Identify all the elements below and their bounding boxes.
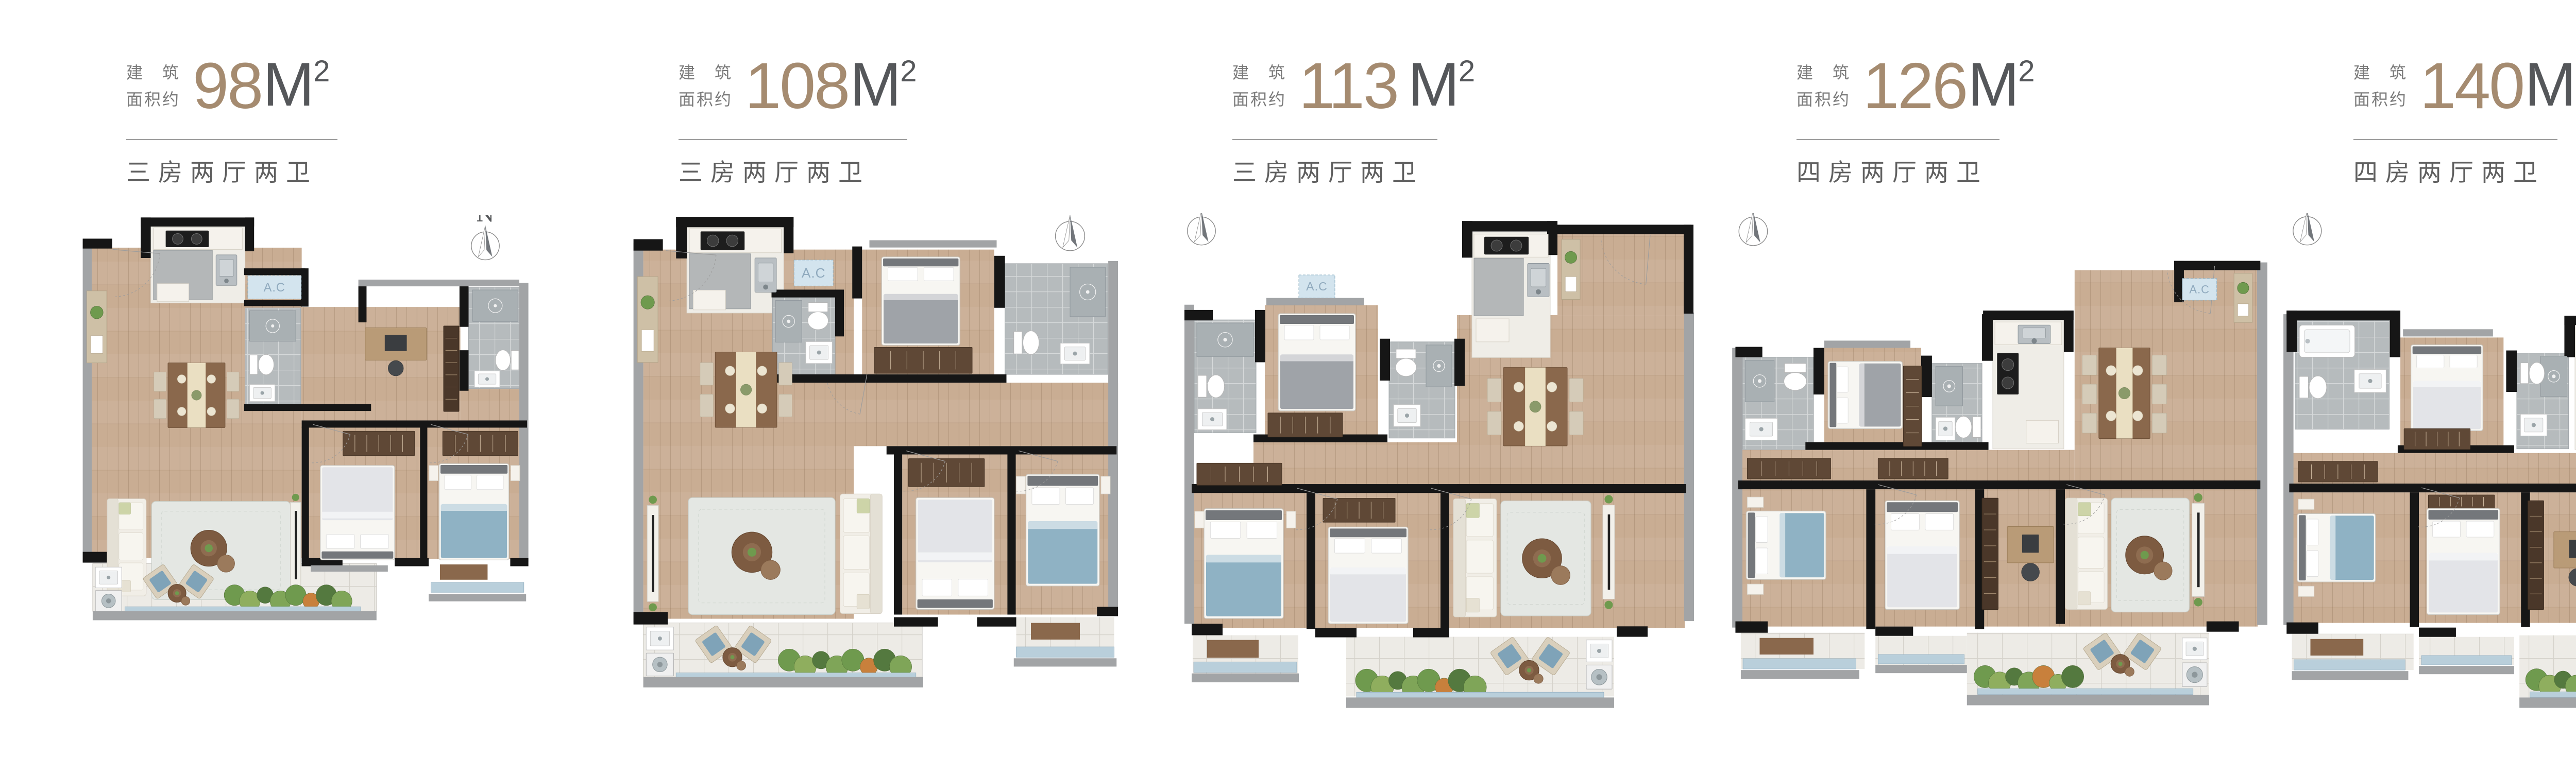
ac-label: A.C: [794, 260, 833, 286]
divider: [679, 139, 907, 140]
area-number: 126: [1863, 54, 1967, 118]
area-unit: M2: [1408, 54, 1474, 115]
area-row: 建 筑 面积约 98 M2: [126, 54, 337, 132]
area-unit: M2: [850, 54, 916, 115]
area-number: 113: [1299, 54, 1398, 118]
floor-plan-svg: A.CN: [2281, 213, 2576, 747]
area-number: 98: [193, 54, 262, 118]
svg-text:N: N: [1060, 214, 1079, 216]
room-config: 四房两厅两卫: [1797, 152, 1999, 188]
compass-icon: N: [2293, 213, 2321, 245]
area-unit: M2: [2524, 54, 2576, 115]
unit-header: 建 筑 面积约 108 M2 三房两厅两卫: [679, 54, 907, 188]
unit-header: 建 筑 面积约 98 M2 三房两厅两卫: [126, 54, 337, 188]
ac-label: A.C: [1299, 275, 1335, 298]
area-value: 126 M2: [1863, 54, 2033, 118]
area-label-line1: 建 筑: [1232, 60, 1286, 87]
divider: [126, 139, 337, 140]
compass-icon: N: [471, 215, 499, 260]
area-label-line2: 面积约: [126, 87, 180, 113]
unit-header: 建 筑 面积约 113 M2 三房两厅两卫: [1232, 54, 1437, 188]
area-label-line2: 面积约: [679, 87, 733, 113]
ac-label: A.C: [2182, 279, 2217, 300]
svg-text:A.C: A.C: [802, 265, 826, 281]
area-label: 建 筑 面积约: [679, 54, 733, 113]
area-label-line2: 面积约: [2353, 87, 2408, 113]
area-label-line2: 面积约: [1797, 87, 1851, 113]
area-row: 建 筑 面积约 126 M2: [1797, 54, 1999, 132]
area-unit: M2: [1968, 54, 2033, 115]
area-unit-sup: 2: [313, 57, 329, 87]
floor-plan: A.CN: [2281, 213, 2576, 747]
svg-text:A.C: A.C: [1306, 280, 1328, 293]
unit-header: 建 筑 面积约 140 M2 四房两厅两卫: [2353, 54, 2557, 188]
area-label: 建 筑 面积约: [1797, 54, 1851, 113]
area-label: 建 筑 面积约: [1232, 54, 1286, 113]
compass-icon: N: [1739, 213, 1767, 246]
area-label-line1: 建 筑: [1797, 60, 1851, 87]
room-config: 四房两厅两卫: [2353, 152, 2557, 188]
divider: [1232, 139, 1437, 140]
floor-plan-svg: A.CN: [77, 215, 531, 679]
svg-text:N: N: [476, 215, 495, 227]
area-row: 建 筑 面积约 140 M2: [2353, 54, 2557, 132]
floor-plan: A.CN: [630, 214, 1119, 750]
compass-icon: N: [1056, 214, 1085, 251]
area-unit-sup: 2: [2018, 57, 2033, 87]
floor-plan-svg: A.CN: [630, 214, 1119, 750]
divider: [1797, 139, 1999, 140]
area-unit: M2: [263, 54, 329, 115]
floor-plan: A.CN: [1181, 213, 1697, 752]
room-config: 三房两厅两卫: [679, 152, 907, 188]
ac-label: A.C: [248, 276, 301, 299]
area-label-line1: 建 筑: [126, 60, 180, 87]
unit-header: 建 筑 面积约 126 M2 四房两厅两卫: [1797, 54, 1999, 188]
compass-icon: N: [1188, 213, 1215, 245]
area-row: 建 筑 面积约 108 M2: [679, 54, 907, 132]
floorplan-sheet: 建 筑 面积约 98 M2 三房两厅两卫 A.CN 建 筑 面积约 108: [0, 0, 2576, 774]
floor-plan: A.CN: [1730, 213, 2268, 747]
area-label: 建 筑 面积约: [126, 54, 180, 113]
room-config: 三房两厅两卫: [1232, 152, 1437, 188]
room-config: 三房两厅两卫: [126, 152, 337, 188]
area-value: 98 M2: [193, 54, 329, 118]
area-value: 113 M2: [1299, 54, 1474, 118]
area-label-line1: 建 筑: [679, 60, 733, 87]
area-label-line2: 面积约: [1232, 87, 1286, 113]
area-unit-sup: 2: [900, 57, 916, 87]
area-number: 140: [2420, 54, 2523, 118]
floor-plan-svg: A.CN: [1730, 213, 2268, 747]
area-label: 建 筑 面积约: [2353, 54, 2408, 113]
area-value: 140 M2: [2420, 54, 2576, 118]
svg-text:A.C: A.C: [2189, 283, 2210, 296]
area-row: 建 筑 面积约 113 M2: [1232, 54, 1437, 132]
area-label-line1: 建 筑: [2353, 60, 2408, 87]
area-value: 108 M2: [745, 54, 916, 118]
svg-text:A.C: A.C: [264, 281, 285, 295]
divider: [2353, 139, 2557, 140]
floor-plan-svg: A.CN: [1181, 213, 1697, 752]
area-number: 108: [745, 54, 849, 118]
floor-plan: A.CN: [77, 215, 531, 679]
area-unit-sup: 2: [1459, 57, 1474, 87]
